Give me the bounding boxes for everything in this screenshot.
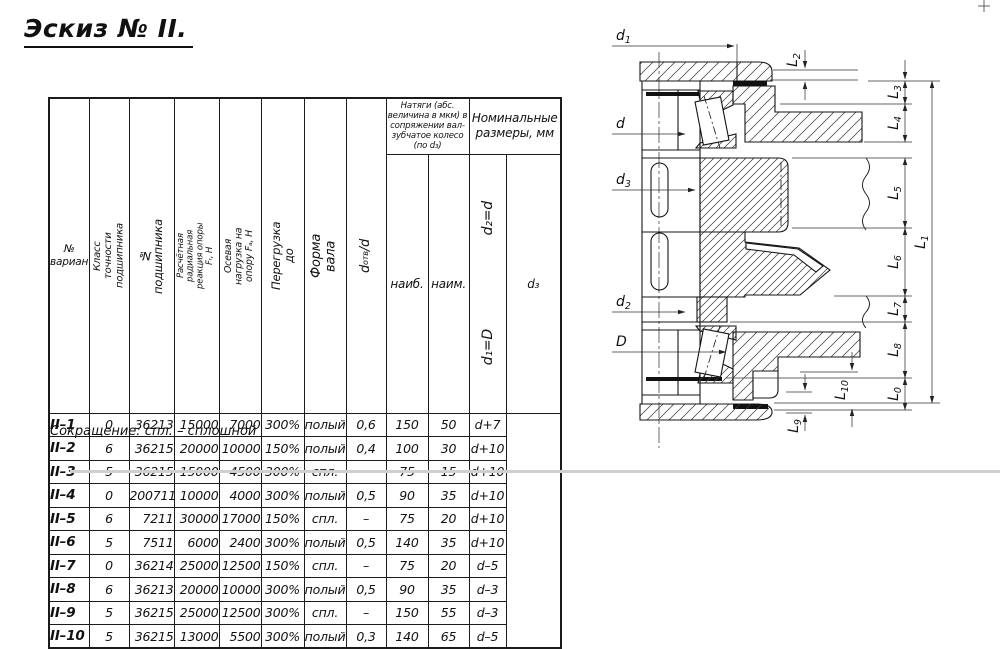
cell-naib: 150 — [386, 601, 428, 625]
cell-over: 300% — [261, 625, 304, 649]
cell-naim: 35 — [428, 578, 469, 602]
cell-ratio: 0,5 — [346, 484, 386, 508]
col-header-axial-load: Осевая нагрузка на опору Fₐ, Н — [219, 98, 261, 413]
col-header-overload: Перегрузка до — [261, 98, 304, 413]
cell-naim: 65 — [428, 625, 469, 649]
cell-bearing: 36213 — [129, 578, 174, 602]
cell-cls: 5 — [89, 601, 129, 625]
subheader-max: наиб. — [386, 154, 428, 413]
cell-naib: 75 — [386, 507, 428, 531]
cell-ratio: 0,5 — [346, 578, 386, 602]
cell-naim: 20 — [428, 554, 469, 578]
cell-d3: d–5 — [469, 625, 506, 649]
cell-cls: 6 — [89, 507, 129, 531]
dim-label-L6: L6 — [886, 255, 904, 269]
cell-fa: 4000 — [219, 484, 261, 508]
assembly-drawing: d1 d d3 d2 D L2 L3 L4 L5 L6 L7 L8 L0 L1 … — [580, 0, 1000, 474]
cell-over: 300% — [261, 413, 304, 437]
cell-naim: 35 — [428, 484, 469, 508]
group-header-interference: Натяги (абс. величина в мкм) в сопряжени… — [386, 98, 469, 154]
cell-bearing: 7211 — [129, 507, 174, 531]
cell-cls: 5 — [89, 625, 129, 649]
cell-naim: 20 — [428, 507, 469, 531]
cell-naib: 75 — [386, 554, 428, 578]
cell-fr: 25000 — [174, 554, 219, 578]
col-header-shaft-form: Форма вала — [304, 98, 346, 413]
abbreviation-note: Сокращение: спл. – сплошной — [50, 424, 256, 439]
cell-d3: d+10 — [469, 484, 506, 508]
cell-form: полый — [304, 484, 346, 508]
cell-form: спл. — [304, 554, 346, 578]
col-header-radial-reaction: Расчётная радиальная реакция опоры Fᵣ, Н — [174, 98, 219, 413]
cell-fa: 12500 — [219, 601, 261, 625]
cell-naib: 150 — [386, 413, 428, 437]
group-header-nominal-sizes: Номинальные размеры, мм — [469, 98, 561, 154]
table-row: II–26362152000010000150%полый0,410030d+1… — [49, 437, 561, 461]
spacer-sleeve — [697, 297, 727, 322]
cell-fa: 10000 — [219, 578, 261, 602]
dim-label-L7: L7 — [886, 302, 904, 316]
table-row: II–65751160002400300%полый0,514035d+10 — [49, 531, 561, 555]
cell-d3: d–3 — [469, 578, 506, 602]
cell-variant: II–2 — [49, 437, 89, 461]
col-header-bore-ratio: dотв/d — [346, 98, 386, 413]
cell-cls: 0 — [89, 554, 129, 578]
dim-label-L2: L2 — [785, 53, 803, 67]
ratio-rest: /d — [358, 239, 373, 251]
cell-variant: II–8 — [49, 578, 89, 602]
keyway-slot-lower — [651, 233, 668, 290]
cell-naim: 50 — [428, 413, 469, 437]
dim-label-d1: d1 — [616, 28, 631, 46]
cell-over: 300% — [261, 484, 304, 508]
col-header-accuracy-class: Класс точности подшипника — [89, 98, 129, 413]
cell-fr: 6000 — [174, 531, 219, 555]
dim-label-d3: d3 — [616, 172, 631, 190]
cell-d3: d+10 — [469, 437, 506, 461]
dim-label-L9: L9 — [786, 419, 804, 433]
scan-edge-artifact — [70, 470, 1000, 473]
upper-housing — [733, 86, 862, 142]
group-label-d2-eq-d: d₂=d — [480, 201, 496, 235]
col-header-bearing-no: № подшипника — [129, 98, 174, 413]
cell-cls: 0 — [89, 484, 129, 508]
ratio-subscript: отв — [361, 251, 370, 265]
cell-naib: 100 — [386, 437, 428, 461]
cell-form: полый — [304, 625, 346, 649]
top-end-cap — [640, 62, 772, 81]
cell-fr: 13000 — [174, 625, 219, 649]
cell-bearing: 36215 — [129, 437, 174, 461]
cell-variant: II–5 — [49, 507, 89, 531]
dim-label-L8: L8 — [886, 343, 904, 357]
break-line-lower — [863, 296, 870, 328]
cell-naim: 55 — [428, 601, 469, 625]
cell-variant: II–7 — [49, 554, 89, 578]
cell-cls: 5 — [89, 531, 129, 555]
cell-bearing: 7511 — [129, 531, 174, 555]
cell-ratio: 0,6 — [346, 413, 386, 437]
cell-naim: 30 — [428, 437, 469, 461]
cell-ratio: 0,4 — [346, 437, 386, 461]
gear-hub — [700, 158, 788, 232]
dim-label-d: d — [616, 116, 625, 132]
cell-d3: d+7 — [469, 413, 506, 437]
cell-form: полый — [304, 437, 346, 461]
cell-bearing: 36214 — [129, 554, 174, 578]
diameter-equality-cell: d₂=d d₁=D — [469, 154, 506, 413]
bottom-end-cap — [640, 404, 772, 420]
cell-fr: 30000 — [174, 507, 219, 531]
table-row: II–95362152500012500300%спл.–15055d–3 — [49, 601, 561, 625]
bottom-tapered-bearing — [695, 326, 736, 383]
cell-fr: 20000 — [174, 578, 219, 602]
dim-label-L1: L1 — [913, 235, 931, 249]
table-row: II–86362132000010000300%полый0,59035d–3 — [49, 578, 561, 602]
dim-label-L5: L5 — [886, 186, 904, 200]
dim-label-L3: L3 — [886, 85, 904, 99]
cell-over: 150% — [261, 554, 304, 578]
cell-ratio: 0,5 — [346, 531, 386, 555]
cell-fa: 12500 — [219, 554, 261, 578]
table-row: II–402007111100004000300%полый0,59035d+1… — [49, 484, 561, 508]
cell-over: 300% — [261, 578, 304, 602]
cell-bearing: 36215 — [129, 601, 174, 625]
cell-ratio: – — [346, 507, 386, 531]
cell-over: 300% — [261, 531, 304, 555]
cell-naib: 140 — [386, 625, 428, 649]
top-tapered-bearing — [695, 91, 736, 148]
cell-fa: 5500 — [219, 625, 261, 649]
table-row: II–10536215130005500300%полый0,314065d–5 — [49, 625, 561, 649]
cell-variant: II–6 — [49, 531, 89, 555]
cell-variant: II–9 — [49, 601, 89, 625]
cell-fr: 10000 — [174, 484, 219, 508]
scanned-document-page: { "title": "Эскиз № II.", "note": "Сокра… — [0, 0, 1000, 474]
cell-fa: 17000 — [219, 507, 261, 531]
table-row: II–5672113000017000150%спл.–7520d+10 — [49, 507, 561, 531]
dim-label-L0: L0 — [886, 387, 904, 401]
cell-form: спл. — [304, 601, 346, 625]
cell-naib: 90 — [386, 578, 428, 602]
cell-naim: 35 — [428, 531, 469, 555]
cell-naib: 140 — [386, 531, 428, 555]
cell-d3: d+10 — [469, 531, 506, 555]
subheader-d3: d₃ — [506, 154, 561, 413]
break-line-upper — [863, 158, 870, 230]
cell-bearing: 36215 — [129, 625, 174, 649]
registration-cross — [978, 0, 990, 12]
top-gasket — [733, 81, 767, 86]
table-row: II–70362142500012500150%спл.–7520d–5 — [49, 554, 561, 578]
cell-over: 300% — [261, 601, 304, 625]
dim-label-L4: L4 — [886, 116, 904, 130]
cell-fa: 10000 — [219, 437, 261, 461]
shaft-and-housing — [640, 62, 870, 420]
cell-naib: 90 — [386, 484, 428, 508]
cell-d3: d+10 — [469, 507, 506, 531]
dim-label-D: D — [616, 334, 627, 350]
ratio-base: d — [358, 265, 373, 273]
cell-d3: d–3 — [469, 601, 506, 625]
cell-form: спл. — [304, 507, 346, 531]
cell-ratio: – — [346, 554, 386, 578]
page-title: Эскиз № II. — [24, 14, 193, 48]
dim-label-L10: L10 — [833, 380, 851, 400]
variants-table: № варианта Класс точности подшипника № п… — [48, 97, 562, 649]
cell-fr: 25000 — [174, 601, 219, 625]
cell-over: 150% — [261, 507, 304, 531]
group-label-d1-eq-D: d₁=D — [480, 329, 496, 365]
cell-bearing: 2007111 — [129, 484, 174, 508]
cell-ratio: 0,3 — [346, 625, 386, 649]
cell-fr: 20000 — [174, 437, 219, 461]
cell-form: полый — [304, 531, 346, 555]
cell-cls: 6 — [89, 437, 129, 461]
bearing-cover — [753, 371, 778, 398]
cell-over: 150% — [261, 437, 304, 461]
col-header-variant: № варианта — [49, 98, 89, 413]
cell-ratio: – — [346, 601, 386, 625]
cell-variant: II–4 — [49, 484, 89, 508]
cell-cls: 6 — [89, 578, 129, 602]
cell-variant: II–10 — [49, 625, 89, 649]
cell-fa: 2400 — [219, 531, 261, 555]
cell-d3: d–5 — [469, 554, 506, 578]
subheader-min: наим. — [428, 154, 469, 413]
cell-form: полый — [304, 413, 346, 437]
dim-label-d2: d2 — [616, 294, 631, 312]
cell-form: полый — [304, 578, 346, 602]
